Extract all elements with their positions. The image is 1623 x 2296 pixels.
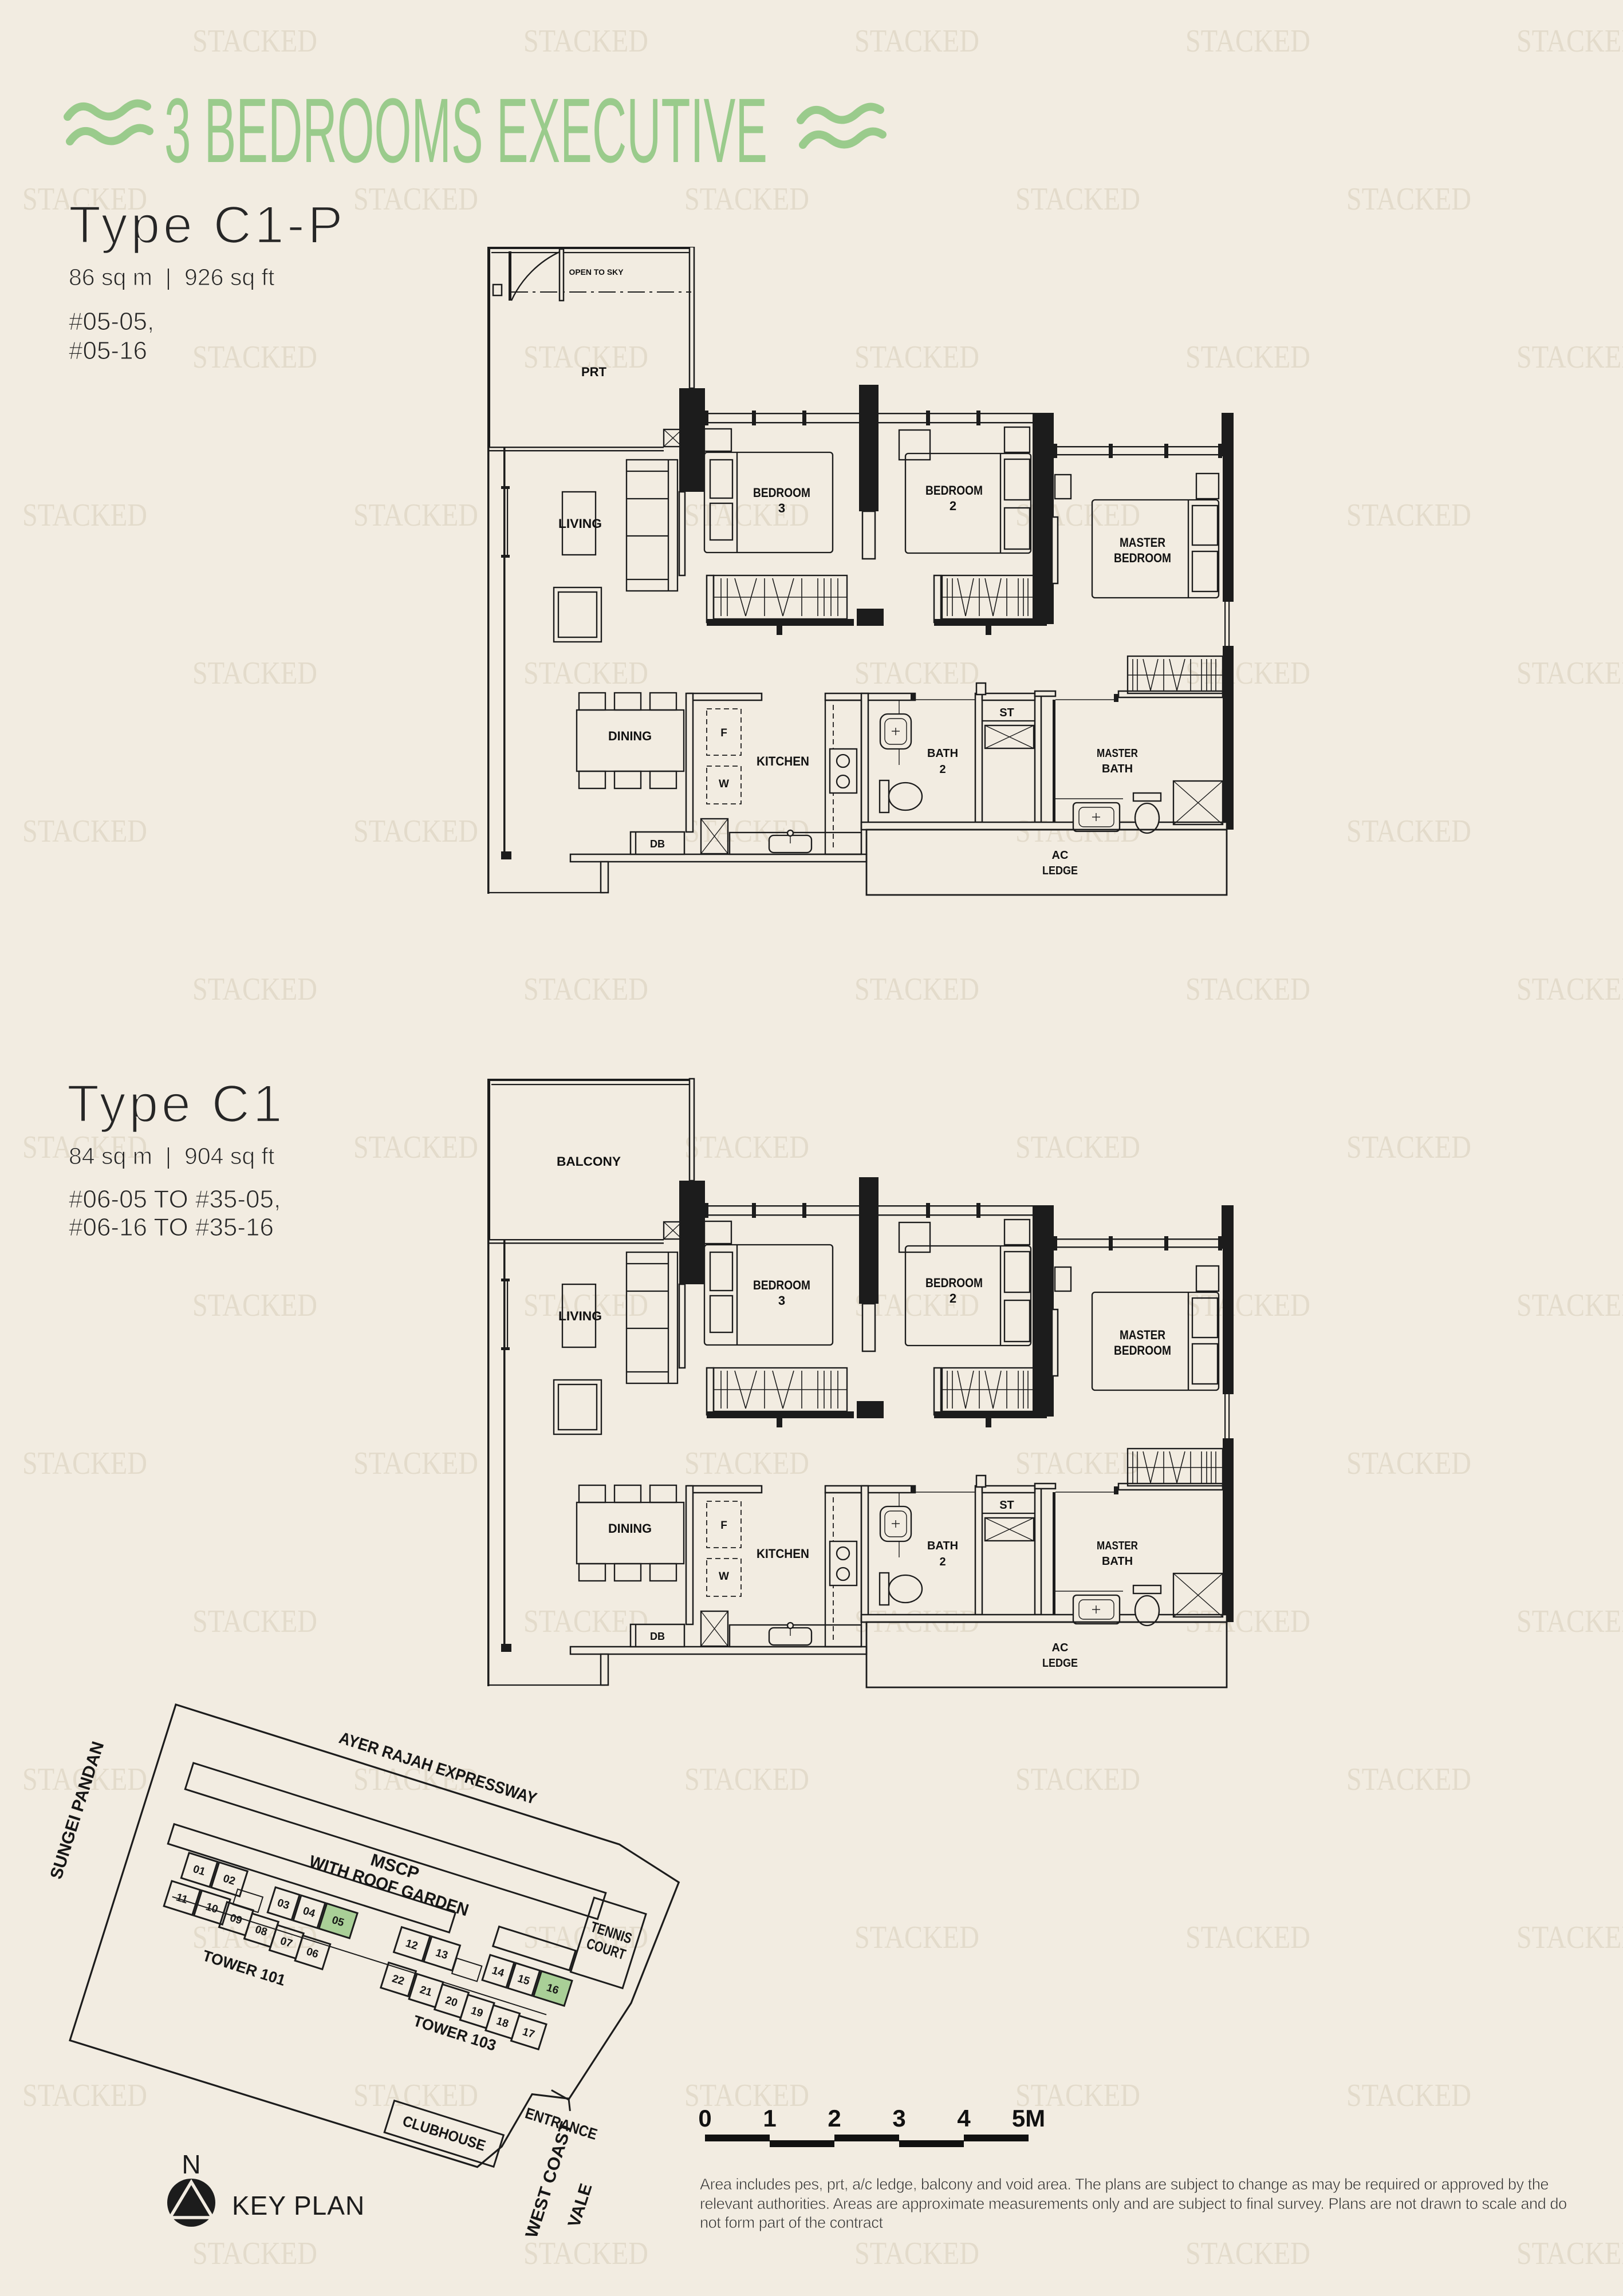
svg-text:KITCHEN: KITCHEN [757,1547,809,1561]
svg-text:2: 2 [950,1291,956,1305]
svg-text:BEDROOM: BEDROOM [753,486,810,500]
svg-text:BATH: BATH [1102,763,1133,775]
svg-text:OPEN TO SKY: OPEN TO SKY [569,267,624,277]
svg-text:N: N [182,2149,200,2179]
svg-text:BEDROOM: BEDROOM [1114,1343,1171,1358]
svg-text:20: 20 [444,1994,459,2009]
svg-text:F: F [720,727,727,739]
svg-text:BATH: BATH [927,1540,958,1552]
svg-text:MASTER: MASTER [1097,1540,1138,1552]
svg-text:KEY PLAN: KEY PLAN [232,2191,365,2220]
svg-text:ST: ST [999,707,1014,719]
svg-text:AYER RAJAH EXPRESSWAY: AYER RAJAH EXPRESSWAY [337,1729,539,1808]
svg-text:04: 04 [301,1905,317,1920]
svg-text:3: 3 [892,2107,905,2132]
svg-text:LEDGE: LEDGE [1042,865,1078,877]
svg-text:VALE: VALE [565,2181,596,2230]
svg-text:19: 19 [469,2005,484,2019]
svg-text:10: 10 [204,1901,219,1916]
svg-text:SUNGEI PANDAN: SUNGEI PANDAN [47,1739,108,1881]
svg-text:BEDROOM: BEDROOM [925,483,983,498]
svg-text:BEDROOM: BEDROOM [925,1276,983,1290]
svg-text:0: 0 [698,2107,711,2132]
svg-text:LEDGE: LEDGE [1042,1657,1078,1670]
svg-text:MASTER: MASTER [1120,1328,1165,1342]
svg-text:W: W [719,1571,729,1583]
svg-text:17: 17 [521,2026,536,2041]
svg-text:BATH: BATH [927,747,958,760]
svg-text:06: 06 [305,1946,320,1960]
svg-text:F: F [720,1520,727,1532]
svg-text:BEDROOM: BEDROOM [753,1278,810,1292]
svg-text:BEDROOM: BEDROOM [1114,551,1171,565]
svg-text:LIVING: LIVING [558,1309,602,1323]
svg-text:3: 3 [778,1293,785,1308]
svg-text:5M: 5M [1012,2107,1045,2132]
svg-text:03: 03 [275,1897,290,1912]
svg-text:MASTER: MASTER [1120,535,1165,550]
svg-text:TOWER 101: TOWER 101 [200,1947,287,1989]
svg-text:01: 01 [191,1863,207,1879]
svg-text:07: 07 [279,1935,294,1950]
svg-text:4: 4 [957,2107,971,2132]
svg-text:KITCHEN: KITCHEN [757,754,809,768]
svg-text:TOWER 103: TOWER 103 [411,2012,498,2054]
svg-text:15: 15 [516,1972,531,1988]
svg-text:PRT: PRT [581,365,607,379]
svg-text:DINING: DINING [608,729,652,743]
svg-text:BATH: BATH [1102,1555,1133,1568]
svg-text:18: 18 [495,2015,510,2030]
svg-text:LIVING: LIVING [558,516,602,531]
svg-text:13: 13 [434,1947,449,1962]
svg-text:2: 2 [939,763,946,776]
svg-text:2: 2 [950,499,956,513]
svg-text:BALCONY: BALCONY [557,1154,621,1169]
svg-text:3 BEDROOMS EXECUTIVE: 3 BEDROOMS EXECUTIVE [164,79,767,182]
svg-text:AC: AC [1052,1642,1069,1654]
svg-text:2: 2 [828,2107,841,2132]
svg-text:09: 09 [229,1912,243,1927]
svg-text:08: 08 [254,1923,269,1938]
svg-text:3: 3 [778,501,785,515]
svg-text:1: 1 [763,2107,776,2132]
svg-text:W: W [719,778,729,790]
svg-text:12: 12 [404,1938,419,1952]
svg-text:22: 22 [391,1972,405,1987]
svg-text:DINING: DINING [608,1521,652,1536]
svg-text:11: 11 [175,1891,190,1906]
svg-text:21: 21 [418,1984,434,1999]
svg-text:2: 2 [939,1556,946,1568]
svg-text:DB: DB [650,838,665,850]
svg-text:ST: ST [999,1499,1014,1512]
svg-text:02: 02 [222,1872,237,1887]
svg-text:AC: AC [1052,849,1069,862]
svg-text:14: 14 [490,1964,506,1980]
svg-text:MASTER: MASTER [1097,747,1138,760]
